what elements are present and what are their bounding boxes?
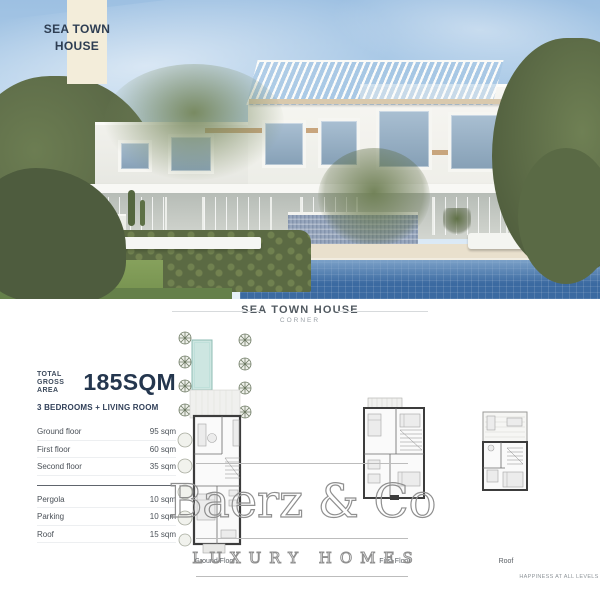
watermark-rule-bottom <box>196 576 408 577</box>
floor-label: Second floor <box>37 462 82 471</box>
area-table: Ground floor 95 sqm First floor 60 sqm S… <box>37 423 176 543</box>
ground-floor-plan-drawing <box>177 328 253 556</box>
terrace-canopy <box>55 184 525 193</box>
banner-line2: HOUSE <box>34 38 120 55</box>
extra-label: Pergola <box>37 495 65 504</box>
floor-label: Ground floor <box>37 427 81 436</box>
caption-title: SEA TOWN HOUSE <box>0 304 600 316</box>
table-row: Second floor 35 sqm <box>37 458 176 476</box>
project-banner-title: SEA TOWN HOUSE <box>34 21 120 55</box>
extra-value: 15 sqm <box>150 530 176 539</box>
caption-rule-right <box>336 311 428 312</box>
floor-value: 35 sqm <box>150 462 176 471</box>
hero-photo: SEA TOWN HOUSE <box>0 0 600 299</box>
caption-rule-left <box>172 311 264 312</box>
olive-tree <box>318 148 430 246</box>
potted-plant <box>443 208 471 236</box>
extra-label: Parking <box>37 512 64 521</box>
footer-slogan: HAPPINESS AT ALL LEVELS <box>516 574 600 580</box>
total-label-line2: GROSS AREA <box>37 379 74 395</box>
total-gross-area-label: TOTAL GROSS AREA <box>37 371 74 395</box>
banner-line1: SEA TOWN <box>34 21 120 38</box>
brochure-page: SEA TOWN HOUSE SEA TOWN HOUSE CORNER TOT… <box>0 0 600 600</box>
total-gross-area-value: 185SQM <box>83 369 176 396</box>
tree-canopy-overhang <box>104 64 284 180</box>
floor-value: 60 sqm <box>150 445 176 454</box>
area-info-panel: TOTAL GROSS AREA 185SQM 3 BEDROOMS + LIV… <box>37 369 176 543</box>
caption-subtitle: CORNER <box>0 317 600 324</box>
floor-value: 95 sqm <box>150 427 176 436</box>
table-row: Parking 10 sqm <box>37 508 176 526</box>
first-floor-label: First Floor <box>360 558 430 565</box>
table-row: Ground floor 95 sqm <box>37 423 176 441</box>
table-row: Roof 15 sqm <box>37 526 176 544</box>
table-row: Pergola 10 sqm <box>37 491 176 509</box>
table-divider <box>37 485 176 486</box>
total-gross-area-row: TOTAL GROSS AREA 185SQM <box>37 369 176 396</box>
table-row: First floor 60 sqm <box>37 441 176 459</box>
ground-floor-label: Ground Floor <box>178 558 252 565</box>
first-floor-plan-drawing <box>360 396 430 508</box>
wood-pergola-beam <box>249 99 501 104</box>
extra-label: Roof <box>37 530 54 539</box>
bedroom-configuration: 3 BEDROOMS + LIVING ROOM <box>37 403 176 412</box>
cactus <box>140 200 145 226</box>
floor-label: First floor <box>37 445 70 454</box>
roof-label: Roof <box>477 558 535 565</box>
roof-plan-drawing <box>477 410 535 498</box>
extra-value: 10 sqm <box>150 512 176 521</box>
extra-value: 10 sqm <box>150 495 176 504</box>
total-label-line1: TOTAL <box>37 371 74 379</box>
cactus <box>128 190 135 226</box>
